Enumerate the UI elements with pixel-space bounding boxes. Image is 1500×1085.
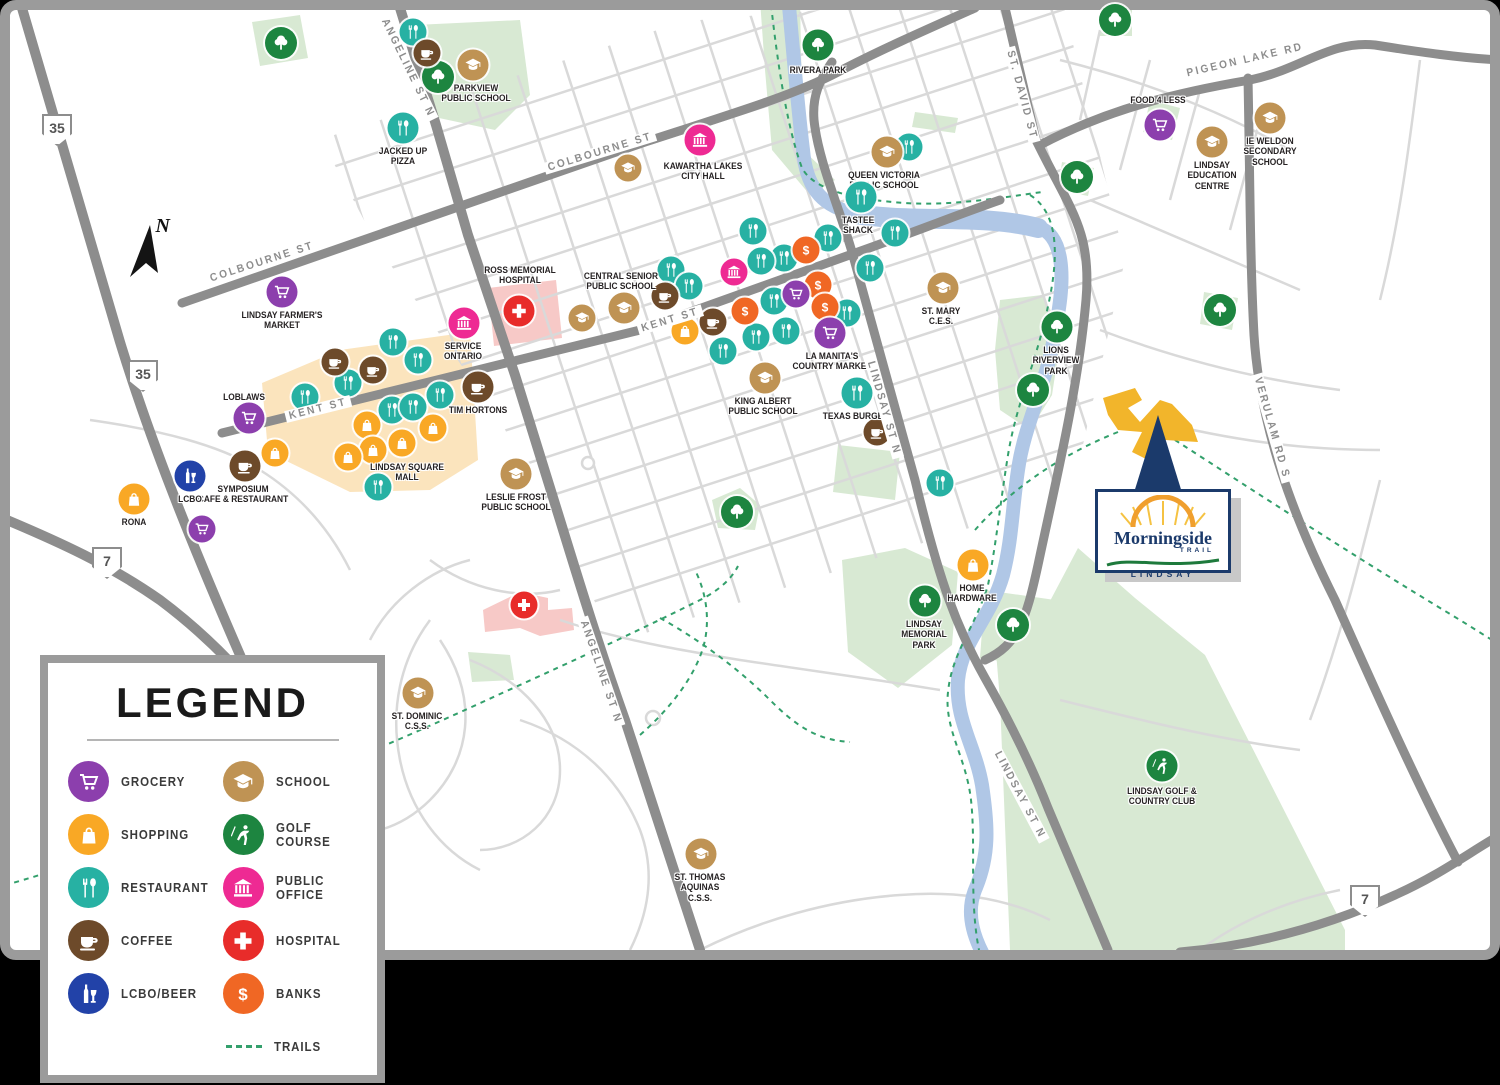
legend-item-restaurant: RESTAURANT — [68, 861, 223, 914]
school-icon — [223, 761, 264, 802]
golf-icon — [223, 814, 264, 855]
legend-item-label: SHOPPING — [121, 828, 189, 842]
coffee-icon — [68, 920, 109, 961]
legend-item-hospital: HOSPITAL — [223, 914, 378, 967]
bank-icon: $ — [231, 982, 255, 1006]
trail-dash-icon — [226, 1045, 262, 1048]
coffee-icon — [77, 929, 101, 953]
legend-title: LEGEND — [48, 679, 377, 727]
bank-icon: $ — [223, 973, 264, 1014]
legend-item-label: LCBO/BEER — [121, 987, 197, 1001]
legend-item-grocery: GROCERY — [68, 755, 223, 808]
grocery-icon — [68, 761, 109, 802]
legend-item-lcbo-beer: LCBO/BEER — [68, 967, 223, 1020]
legend-item-label: SCHOOL — [276, 775, 331, 789]
legend-item-golf-course: GOLF COURSE — [223, 808, 378, 861]
legend-item-label: HOSPITAL — [276, 934, 341, 948]
lcbo-icon — [77, 982, 101, 1006]
hospital-icon — [223, 920, 264, 961]
hospital-icon — [231, 929, 255, 953]
legend-item-school: SCHOOL — [223, 755, 378, 808]
svg-text:$: $ — [238, 985, 248, 1004]
legend-item-trails: TRAILS — [223, 1020, 378, 1073]
shopping-icon — [68, 814, 109, 855]
grocery-icon — [77, 770, 101, 794]
legend-divider — [87, 739, 339, 741]
legend-item-label: RESTAURANT — [121, 881, 209, 895]
legend-column-left: GROCERYSHOPPINGRESTAURANTCOFFEELCBO/BEER — [68, 755, 223, 1073]
public-office-icon — [231, 876, 255, 900]
legend-item-label: GROCERY — [121, 775, 185, 789]
public-office-icon — [223, 867, 264, 908]
lcbo-icon — [68, 973, 109, 1014]
legend-item-label: COFFEE — [121, 934, 173, 948]
legend-item-label: TRAILS — [274, 1040, 321, 1054]
legend-item-coffee: COFFEE — [68, 914, 223, 967]
restaurant-icon — [68, 867, 109, 908]
legend-item-shopping: SHOPPING — [68, 808, 223, 861]
restaurant-icon — [77, 876, 101, 900]
legend-item-label: PUBLIC OFFICE — [276, 874, 369, 902]
legend-item-label: BANKS — [276, 987, 321, 1001]
legend-item-public-office: PUBLIC OFFICE — [223, 861, 378, 914]
school-icon — [231, 770, 255, 794]
legend-panel: LEGEND GROCERYSHOPPINGRESTAURANTCOFFEELC… — [40, 655, 385, 1083]
legend-item-label: GOLF COURSE — [276, 821, 369, 849]
legend-column-right: SCHOOLGOLF COURSEPUBLIC OFFICEHOSPITAL$B… — [223, 755, 378, 1073]
legend-item-banks: $BANKS — [223, 967, 378, 1020]
golf-icon — [231, 823, 255, 847]
lindsay-amenities-map: N Morningside TRAIL LINDSAY $$$$PARKVIEW — [0, 0, 1500, 1085]
shopping-icon — [77, 823, 101, 847]
